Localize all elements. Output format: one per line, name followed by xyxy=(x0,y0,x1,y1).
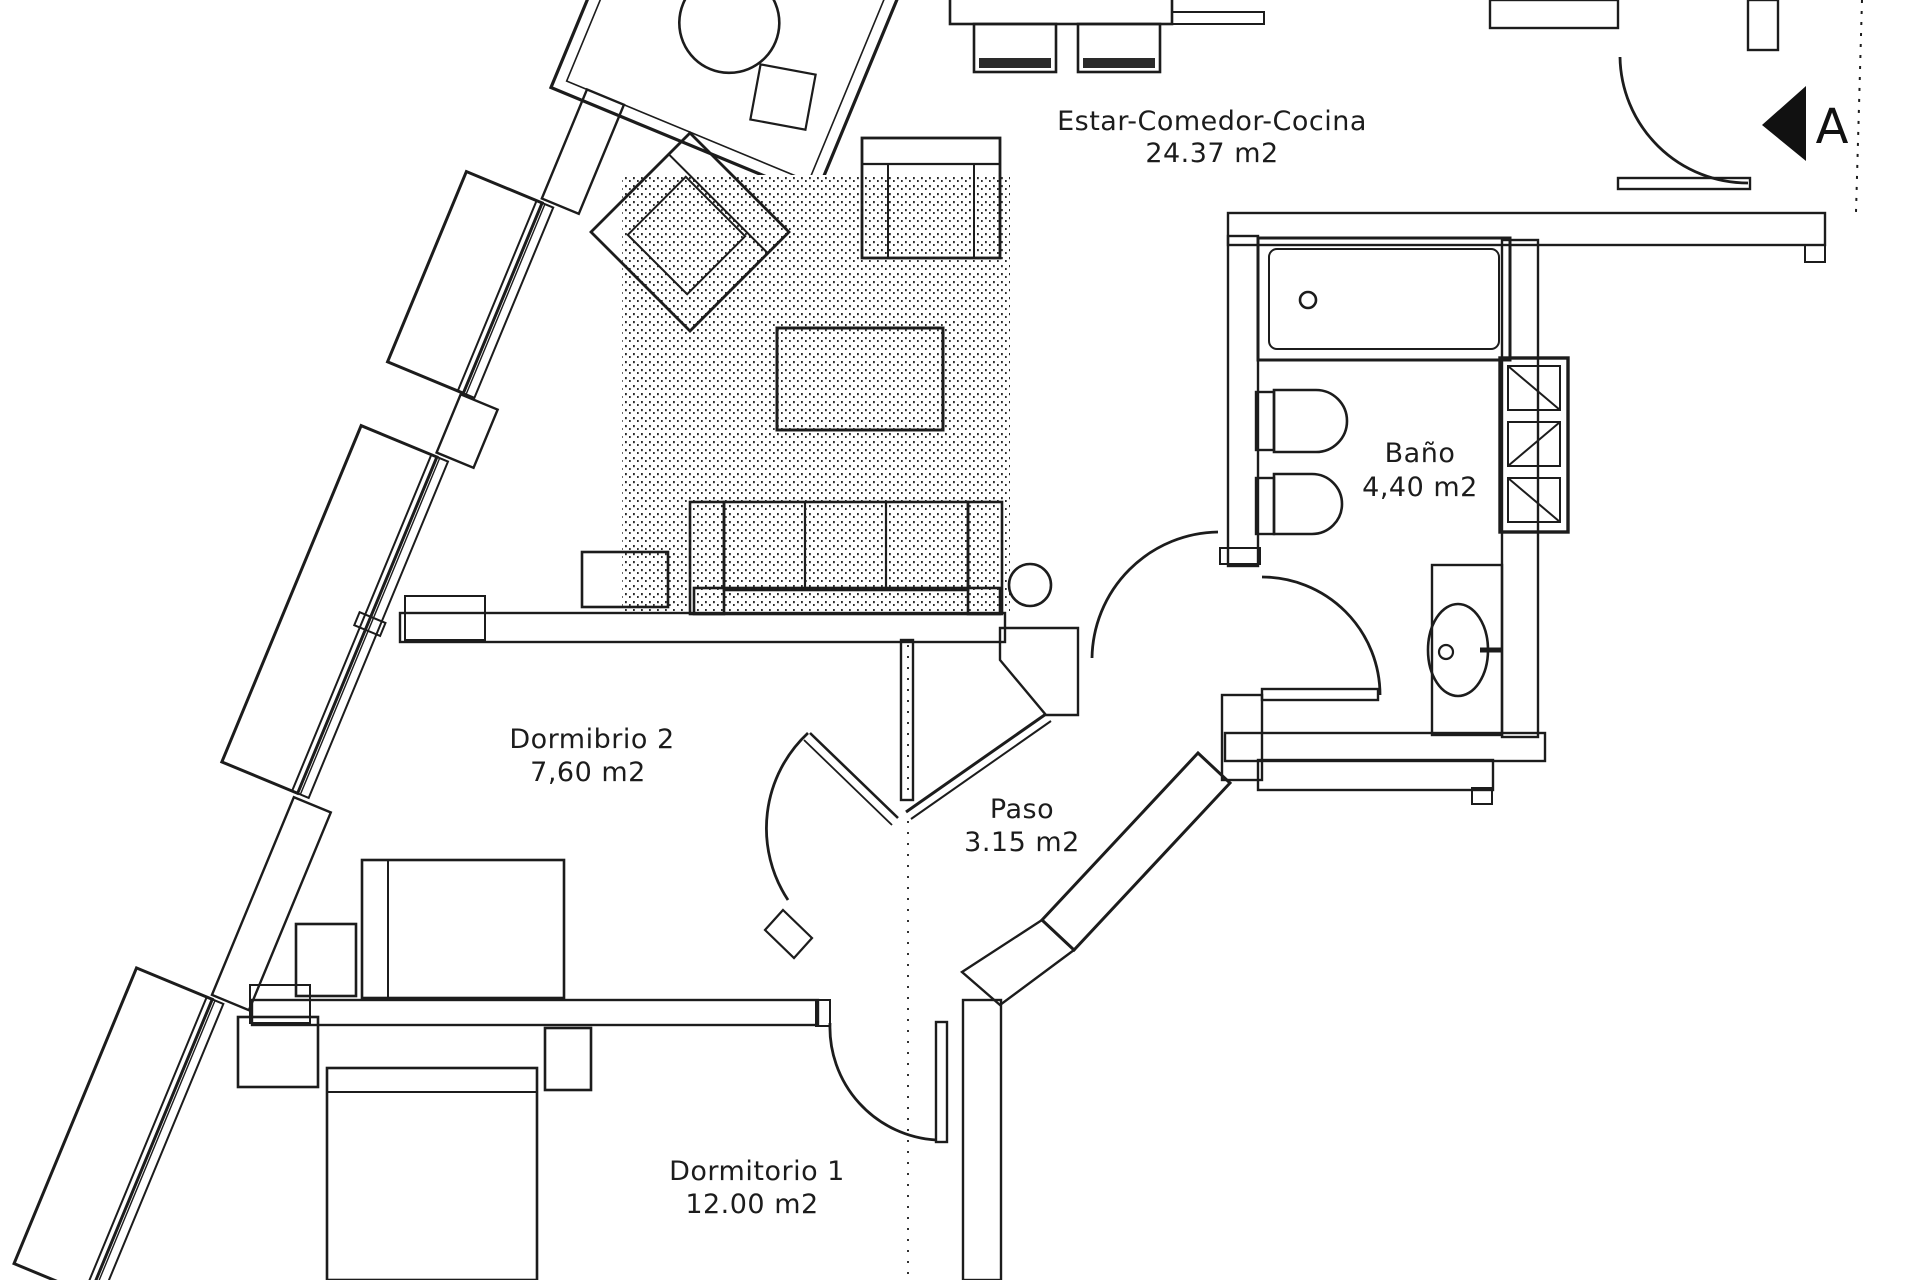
room-label-bed2-area: 7,60 m2 xyxy=(530,757,646,788)
room-label-bed1-name: Dormitorio 1 xyxy=(669,1156,845,1187)
floor-plan-drawing: A xyxy=(0,0,1920,1280)
section-marker-label: A xyxy=(1816,99,1849,155)
room-label-bath-name: Baño xyxy=(1385,438,1456,469)
room-label-bed1-area: 12.00 m2 xyxy=(685,1189,818,1220)
room-label-bath-area: 4,40 m2 xyxy=(1362,472,1478,503)
room-label-bed2-name: Dormibrio 2 xyxy=(509,724,674,755)
room-label-living-name: Estar-Comedor-Cocina xyxy=(1057,106,1367,137)
floor-plan-page: A xyxy=(0,0,1920,1280)
rug xyxy=(622,175,1010,611)
room-label-paso-area: 3.15 m2 xyxy=(964,827,1080,858)
room-label-paso-name: Paso xyxy=(990,794,1054,825)
chair-back xyxy=(1083,58,1155,68)
chair-back xyxy=(979,58,1051,68)
room-label-living-area: 24.37 m2 xyxy=(1145,138,1278,169)
